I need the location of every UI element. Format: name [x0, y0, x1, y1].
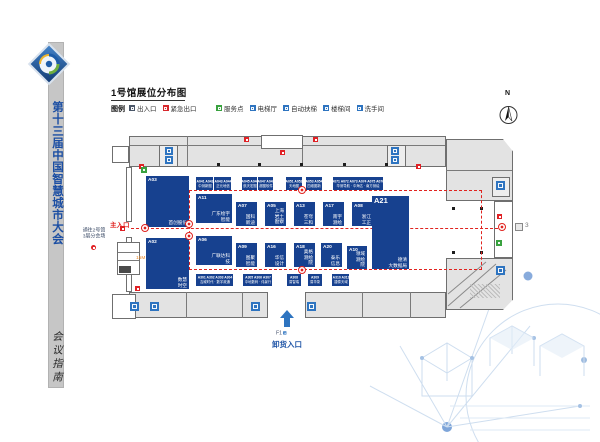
gate-number-label: 3	[525, 222, 529, 229]
legend-item: 自动扶梯	[283, 103, 317, 113]
top-center-recess	[261, 135, 303, 149]
wall-line	[187, 136, 188, 167]
service-point-icon	[216, 105, 222, 111]
conference-title-vertical: 第十三届中国智慧城市大会	[47, 88, 65, 258]
column	[385, 163, 388, 166]
service-point-icon	[141, 167, 147, 173]
legend-item-label: 自动扶梯	[291, 103, 317, 113]
path-marker	[185, 220, 193, 228]
cell-name: 吉威时代 · 数字政通	[196, 280, 233, 284]
restroom-icon	[357, 105, 363, 111]
cell-name: 易智瑞	[287, 280, 301, 284]
cell-name: 中地数码 · 伟景行	[243, 280, 272, 284]
legend-item-label: 楼梯间	[331, 103, 351, 113]
booth-name: 广联达科技	[210, 253, 230, 264]
top-left-annex	[112, 146, 129, 163]
emergency-exit-icon	[163, 105, 169, 111]
booth-A03[interactable]: A03首创股份	[146, 176, 189, 227]
stair-block	[119, 266, 131, 273]
cell-name: 华测导航 · 中海达 · 南方测绘	[333, 184, 383, 188]
path-marker	[185, 232, 193, 240]
path-marker	[141, 224, 149, 232]
legend-item-label: 电梯厅	[258, 103, 278, 113]
wall-line	[118, 252, 139, 253]
booth-id: A06	[198, 237, 207, 242]
service-point-icon	[496, 240, 502, 246]
booth-id: A16	[267, 244, 276, 249]
legend-item: 出入口	[129, 103, 157, 113]
to-hall2-label: 通往2号馆 3层分会场	[82, 227, 106, 239]
booth-A11[interactable]: A11广东绘宇智能	[196, 194, 232, 223]
page-title: 1号馆展位分布图	[111, 85, 187, 99]
stairwell-icon	[323, 105, 329, 111]
column	[217, 163, 220, 166]
booth-name: 南宇 测绘	[333, 214, 342, 225]
conference-guide-label: 会议指南	[47, 326, 65, 390]
booth-A08[interactable]: A08浙江 工正	[352, 202, 373, 226]
booth-name: 国科 新迪	[246, 214, 255, 225]
floor-label: F1	[276, 330, 282, 336]
emergency-exit-icon	[313, 137, 318, 142]
path-marker-east-entrance	[498, 223, 506, 231]
wall-line	[446, 170, 512, 171]
path-marker	[298, 266, 306, 274]
elevator-hall-icon	[251, 302, 260, 311]
booth-strip-cell[interactable]: A308易智瑞	[287, 274, 301, 286]
emergency-exit-icon	[244, 137, 249, 142]
title-underline	[111, 100, 185, 101]
booth-A21[interactable]: A21德清 大数据局	[372, 196, 409, 269]
booth-name: 上海岩土 勘察	[273, 208, 284, 225]
booth-strip-cell[interactable]: A041 A042中测新图	[196, 177, 213, 190]
legend-item: 电梯厅	[250, 103, 278, 113]
booth-id: A20	[323, 244, 332, 249]
left-wall-upper	[126, 167, 132, 222]
elevator-hall-icon	[250, 105, 256, 111]
legend-item: 楼梯间	[323, 103, 351, 113]
wall-line	[186, 292, 187, 318]
booth-name: 广东绘宇智能	[210, 211, 230, 222]
compass-icon	[498, 104, 519, 126]
booth-name: 浙江 工正	[362, 214, 371, 225]
booth-id: A08	[354, 203, 363, 208]
booth-strip-cell[interactable]: A305 A306 A307中地数码 · 伟景行	[243, 274, 272, 286]
entrance-exit-icon	[129, 105, 135, 111]
emergency-exit-icon	[280, 150, 285, 155]
cell-name: 易华录	[308, 280, 322, 284]
wall-line	[242, 292, 243, 318]
cell-name: 四维图新	[306, 184, 322, 188]
escalator-icon	[165, 156, 173, 164]
cargo-entrance-arrow-icon	[280, 310, 294, 327]
booth-name: 图聚 智能	[246, 255, 255, 266]
booth-name: 领域 测绘院	[355, 251, 365, 268]
legend-item-label: 服务点	[224, 103, 244, 113]
elevator-hall-icon	[165, 147, 173, 155]
booth-strip-cell[interactable]: A071 A072 A073 A074 A075 A076华测导航 · 中海达 …	[333, 177, 383, 190]
cell-name: 超图软件	[258, 184, 273, 188]
ramp-hatch	[470, 284, 500, 298]
elevator-hall-icon	[496, 266, 505, 275]
cell-name: 正元地信	[214, 184, 231, 188]
cargo-entrance-label: 卸货入口	[264, 339, 310, 350]
booth-strip-cell[interactable]: A047 A048超图软件	[258, 177, 273, 190]
legend-item: 紧急出口	[163, 103, 197, 113]
legend-label: 图例	[111, 104, 125, 114]
restroom-icon	[150, 302, 159, 311]
legend-group-left: 出入口 紧急出口	[129, 103, 197, 113]
booth-A17[interactable]: A17南宇 测绘	[323, 202, 344, 226]
legend-item-label: 洗手间	[365, 103, 385, 113]
escalator-icon	[391, 156, 399, 164]
booth-id: A11	[198, 195, 207, 200]
main-entrance-label: 主入口	[110, 219, 130, 229]
booth-A13[interactable]: A13苍穹 三和	[294, 202, 315, 226]
column	[343, 163, 346, 166]
booth-id: A07	[238, 203, 247, 208]
booth-id: A13	[296, 203, 305, 208]
emergency-exit-icon	[416, 164, 421, 169]
booth-name: 德清 大数据局	[388, 257, 407, 268]
booth-A10[interactable]: A10领域 测绘院	[347, 246, 367, 269]
elevator-hall-icon	[496, 181, 505, 190]
booth-strip-cell[interactable]: A301 A302 A303 A304吉威时代 · 数字政通	[196, 274, 233, 286]
booth-A05[interactable]: A05上海岩土 勘察	[265, 202, 286, 226]
to-hall2-marker-icon	[91, 245, 96, 250]
escalator-icon	[283, 105, 289, 111]
legend-item: 服务点	[216, 103, 244, 113]
conference-logo	[27, 42, 71, 86]
north-label: N	[505, 90, 510, 97]
booth-A20[interactable]: A20泰乐 信息	[321, 243, 342, 267]
cell-name: 捷泰天域	[332, 280, 349, 284]
booth-name: 奥格 测绘院	[302, 249, 313, 266]
booth-name: 华信 设计	[275, 255, 284, 266]
booth-id: A21	[374, 197, 388, 205]
cell-name: 中测新图	[196, 184, 213, 188]
elevator-hall-icon	[283, 331, 286, 334]
bottom-rooms-band-right	[305, 292, 446, 318]
wall-line	[362, 292, 363, 318]
booth-id: A09	[238, 244, 247, 249]
gate-icon	[515, 223, 523, 231]
booth-A16[interactable]: A16华信 设计	[265, 243, 286, 267]
column	[300, 163, 303, 166]
emergency-exit-icon	[497, 214, 502, 219]
legend-group-right: 服务点 电梯厅 自动扶梯 楼梯间 洗手间	[216, 103, 384, 113]
booth-name: 泰乐 信息	[331, 255, 340, 266]
aisle-width-label: 15M	[136, 255, 145, 260]
booth-id: A02	[148, 239, 157, 244]
booth-A09[interactable]: A09图聚 智能	[236, 243, 257, 267]
legend-item-label: 紧急出口	[171, 103, 197, 113]
legend-item-label: 出入口	[137, 103, 157, 113]
legend-item: 洗手间	[357, 103, 385, 113]
booth-strip-cell[interactable]: A043 A044正元地信	[214, 177, 231, 190]
booth-A06[interactable]: A06广联达科技	[196, 236, 232, 265]
booth-id: A03	[148, 177, 157, 182]
booth-strip-cell[interactable]: A309易华录	[308, 274, 322, 286]
column	[258, 163, 261, 166]
floor-label-row: F1	[276, 330, 287, 336]
elevator-hall-icon	[391, 147, 399, 155]
booth-strip-cell[interactable]: A053 A054四维图新	[306, 177, 322, 190]
booth-strip-cell[interactable]: A310 A311捷泰天域	[332, 274, 349, 286]
elevator-hall-icon	[307, 302, 316, 311]
elevator-hall-icon	[130, 302, 139, 311]
booth-name: 数慧 时空	[178, 277, 187, 288]
booth-name: 苍穹 三和	[304, 214, 313, 225]
booth-strip-cell[interactable]: A045 A046航天宏图	[242, 177, 257, 190]
wall-line	[410, 292, 411, 318]
cell-name: 航天宏图	[242, 184, 257, 188]
booth-A18[interactable]: A18奥格 测绘院	[294, 243, 315, 267]
emergency-exit-icon	[135, 286, 140, 291]
path-marker	[298, 186, 306, 194]
booth-A02[interactable]: A02数慧 时空	[146, 238, 189, 289]
hall1-floorplan-page: 第十三届中国智慧城市大会 会议指南 1号馆展位分布图 图例 出入口 紧急出口 服…	[0, 0, 600, 442]
booth-id: A17	[325, 203, 334, 208]
booth-A07[interactable]: A07国科 新迪	[236, 202, 257, 226]
